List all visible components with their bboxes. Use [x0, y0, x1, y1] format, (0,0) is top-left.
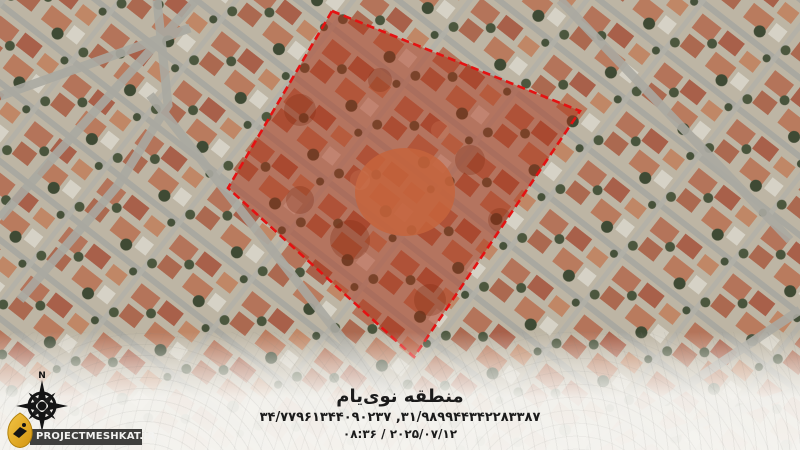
compass-north-label: N	[38, 371, 46, 381]
coordinates-text: ۳۴/۷۷۹۶۱۳۴۴۰۹۰۲۳۷ ,۳۱/۹۸۹۹۴۴۳۴۲۲۸۳۳۸۷	[0, 409, 800, 426]
meshkat-logo-icon	[6, 412, 34, 448]
satellite-map-image	[0, 0, 800, 450]
region-title: منطقه نوی‌یام	[0, 385, 800, 409]
screenshot: منطقه نوی‌یام ۳۴/۷۷۹۶۱۳۴۴۰۹۰۲۳۷ ,۳۱/۹۸۹۹…	[0, 0, 800, 450]
watermark-site-strip: PROJECTMESHKAT.IR	[30, 429, 142, 445]
